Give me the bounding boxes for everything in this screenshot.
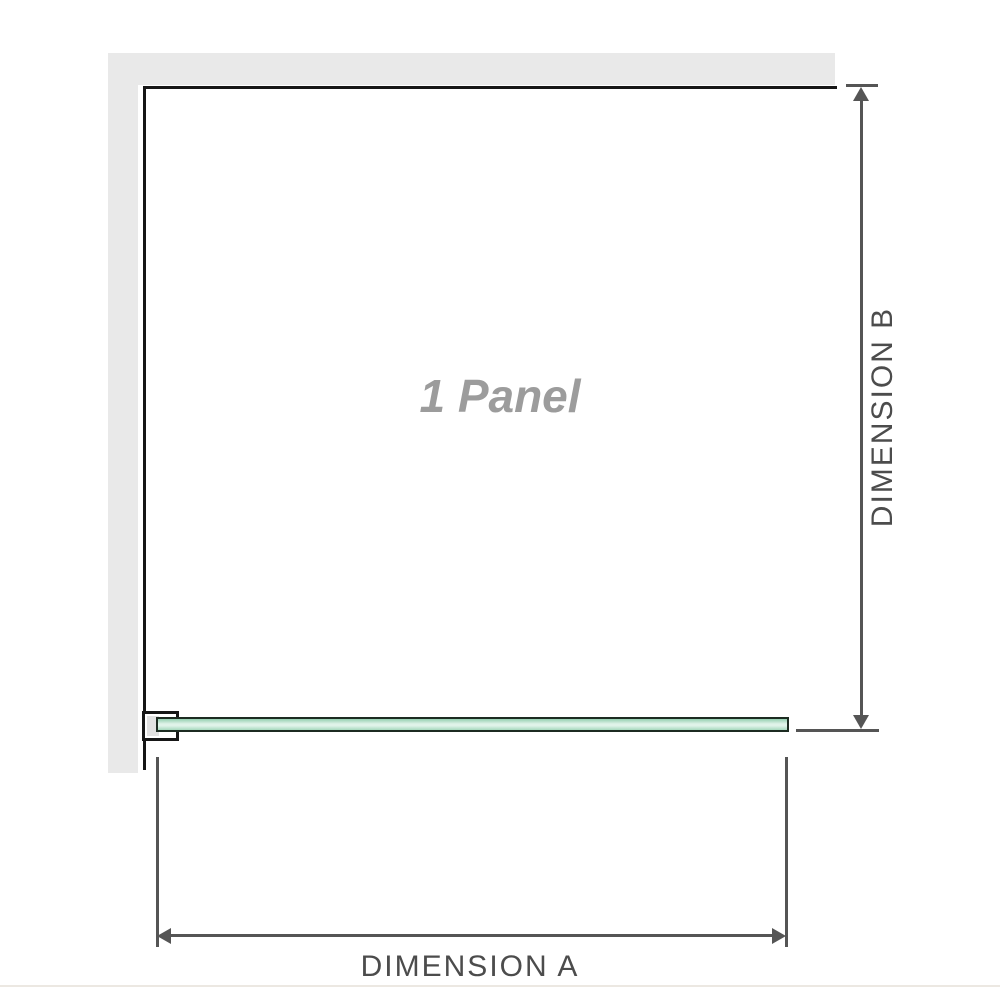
panel-dimension-diagram: 1 Panel DIMENSION B DIMENSION A <box>0 0 1000 1000</box>
dimension-b-arrowhead-down-icon <box>853 715 869 729</box>
dimension-b-line <box>860 100 863 716</box>
dimension-a-extension-left <box>156 757 159 947</box>
wall-edge-top <box>143 86 837 89</box>
dimension-a-extension-right <box>785 757 788 947</box>
panel-count-label: 1 Panel <box>300 368 700 424</box>
wall-top <box>108 53 835 85</box>
dimension-b-arrowhead-up-icon <box>853 87 869 101</box>
dimension-b-label: DIMENSION B <box>868 297 898 537</box>
dimension-a-arrowhead-left-icon <box>157 928 171 944</box>
dimension-b-tick-bottom <box>796 729 879 732</box>
wall-edge-left <box>143 86 146 770</box>
glass-panel <box>156 717 789 732</box>
wall-left <box>108 53 138 773</box>
dimension-a-arrowhead-right-icon <box>772 928 786 944</box>
footer-rule <box>0 985 1000 987</box>
dimension-a-label: DIMENSION A <box>320 950 620 984</box>
dimension-a-line <box>168 934 775 937</box>
